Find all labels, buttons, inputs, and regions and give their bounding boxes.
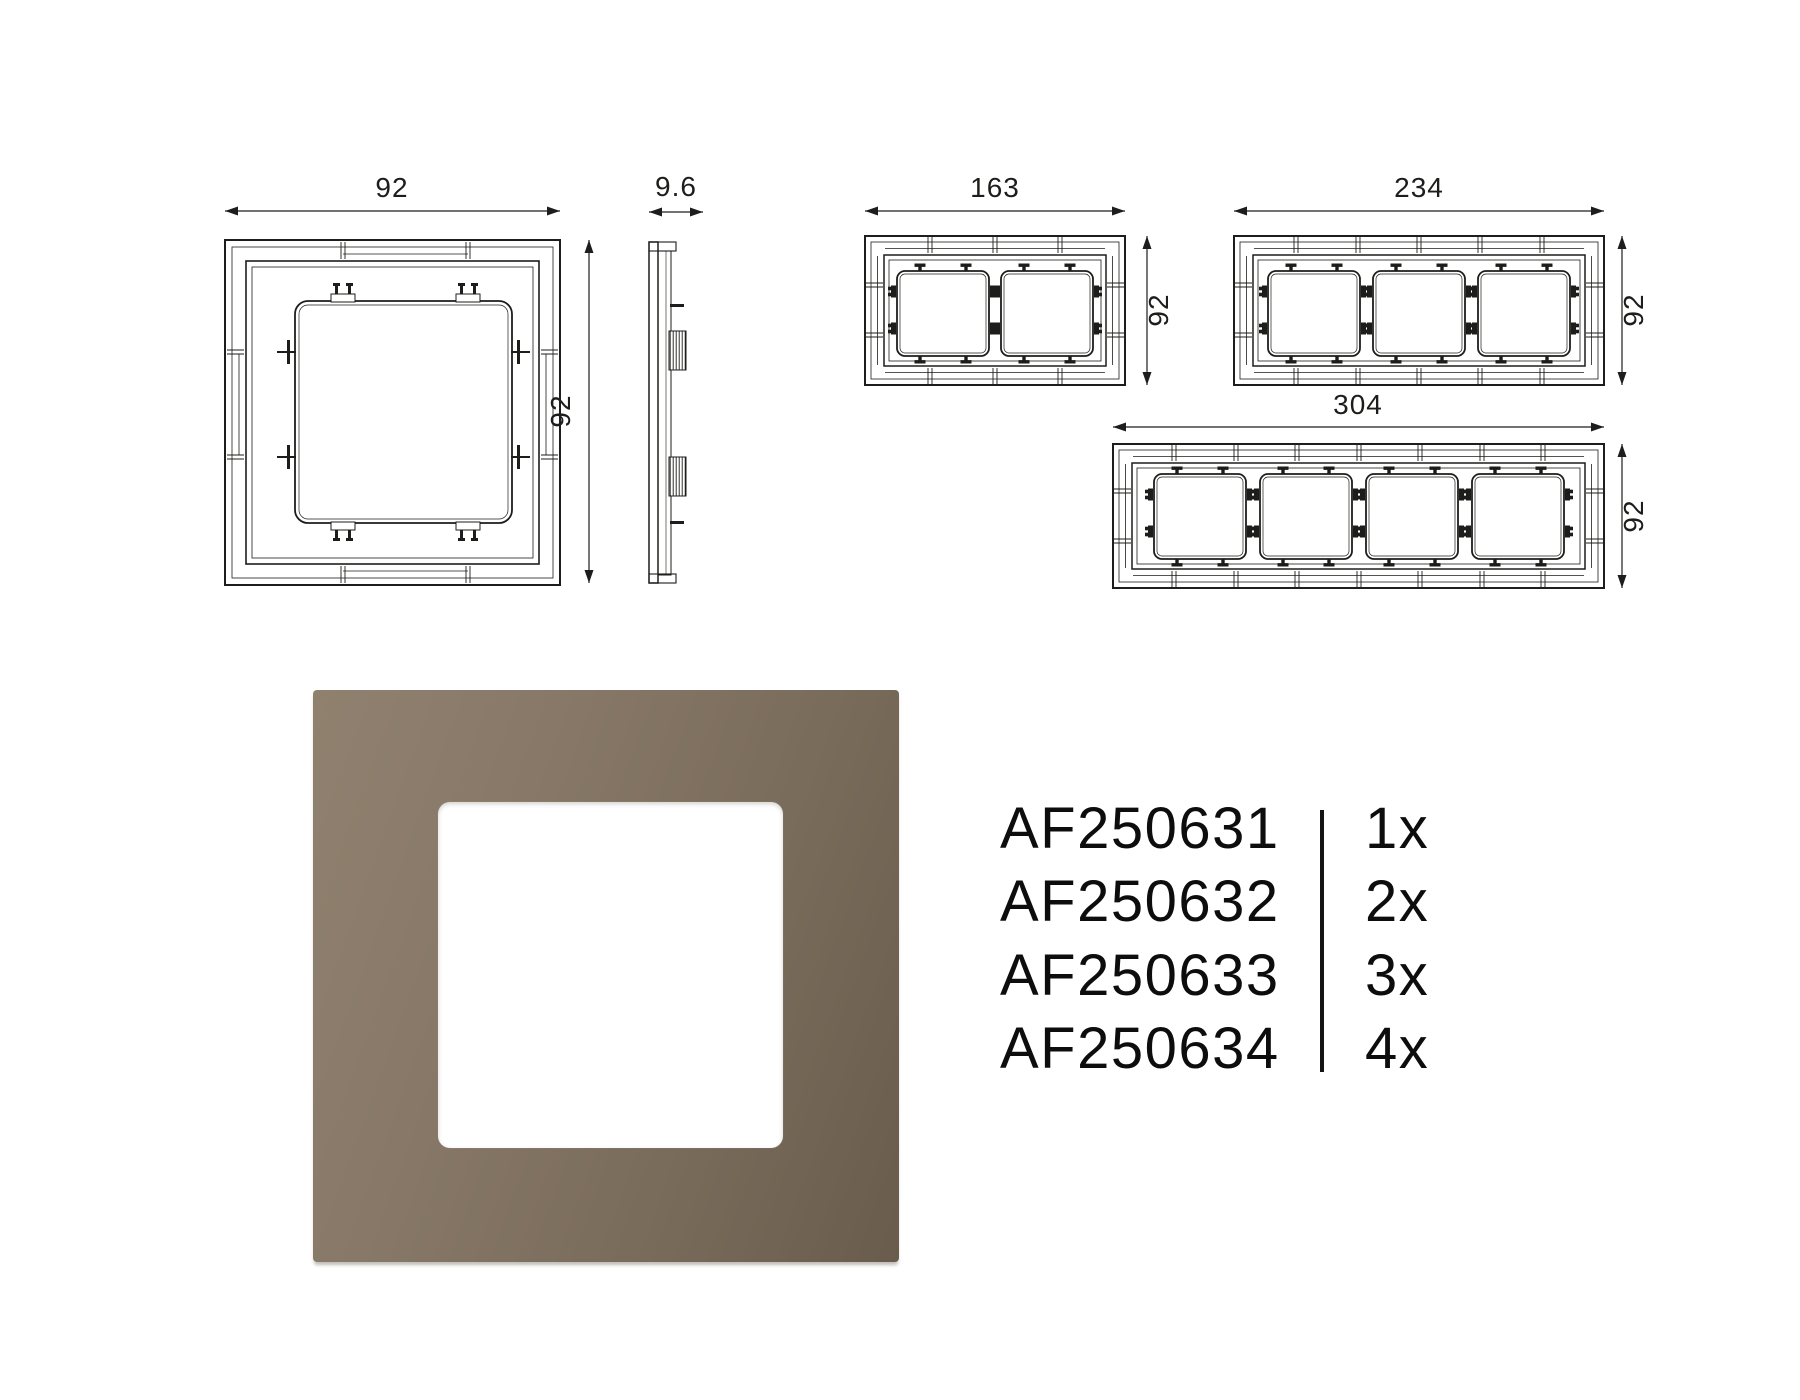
product-code: AF250633 bbox=[1000, 942, 1365, 1009]
product-quantity: 2x bbox=[1365, 868, 1429, 935]
one-gang-width-label: 92 bbox=[375, 172, 408, 203]
four-gang-height-label: 92 bbox=[1618, 499, 1649, 532]
three-gang-width-label: 234 bbox=[1394, 172, 1444, 203]
product-code: AF250632 bbox=[1000, 868, 1365, 935]
product-quantity: 3x bbox=[1365, 942, 1429, 1009]
product-quantity: 1x bbox=[1365, 795, 1429, 862]
technical-drawings-layer: 92 92 9.6 163 92 234 92 304 92 bbox=[0, 0, 1800, 1400]
side-profile-drawing bbox=[649, 242, 686, 583]
product-code: AF250631 bbox=[1000, 795, 1365, 862]
four-gang-front-view-drawing bbox=[1113, 444, 1604, 588]
product-quantity: 4x bbox=[1365, 1015, 1429, 1082]
table-row: AF250631 1x bbox=[1000, 792, 1429, 865]
side-profile-depth-label: 9.6 bbox=[655, 171, 697, 202]
product-photo-window bbox=[438, 802, 783, 1148]
one-gang-front-view-drawing bbox=[225, 240, 560, 585]
four-gang-width-label: 304 bbox=[1333, 389, 1383, 420]
table-row: AF250632 2x bbox=[1000, 865, 1429, 938]
spec-sheet-canvas: 92 92 9.6 163 92 234 92 304 92 AF250631 … bbox=[0, 0, 1800, 1400]
product-photo bbox=[313, 690, 899, 1262]
two-gang-height-label: 92 bbox=[1143, 293, 1174, 326]
two-gang-width-label: 163 bbox=[970, 172, 1020, 203]
three-gang-height-label: 92 bbox=[1618, 293, 1649, 326]
table-row: AF250633 3x bbox=[1000, 939, 1429, 1012]
two-gang-front-view-drawing bbox=[865, 236, 1125, 385]
product-code: AF250634 bbox=[1000, 1015, 1365, 1082]
table-row: AF250634 4x bbox=[1000, 1012, 1429, 1085]
three-gang-front-view-drawing bbox=[1234, 236, 1604, 385]
table-divider bbox=[1320, 810, 1324, 1072]
one-gang-height-label: 92 bbox=[545, 394, 576, 427]
